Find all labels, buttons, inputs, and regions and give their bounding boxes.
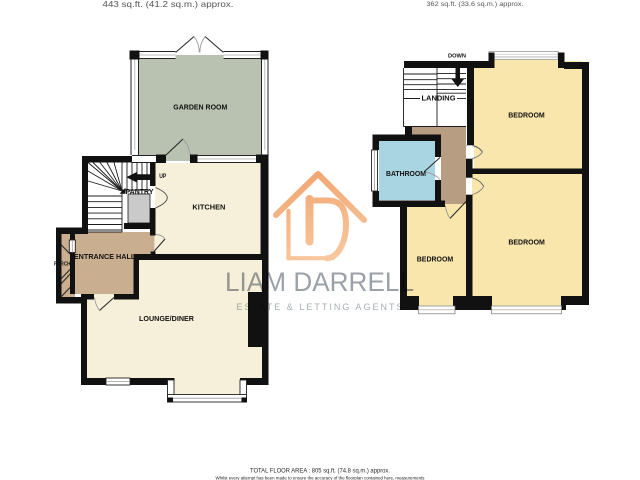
svg-text:362 sq.ft. (33.6 sq.m.) approx: 362 sq.ft. (33.6 sq.m.) approx. [427,1,524,8]
svg-text:KITCHEN: KITCHEN [192,202,225,211]
svg-text:443 sq.ft. (41.2 sq.m.) approx: 443 sq.ft. (41.2 sq.m.) approx. [103,0,234,9]
svg-text:BATHROOM: BATHROOM [386,169,426,178]
svg-text:LOUNGE/DINER: LOUNGE/DINER [139,314,194,323]
svg-text:BEDROOM: BEDROOM [417,255,454,264]
svg-text:Whilst every attempt has been: Whilst every attempt has been made to en… [216,476,426,480]
svg-text:BEDROOM: BEDROOM [508,238,545,247]
svg-text:GARDEN ROOM: GARDEN ROOM [173,103,227,112]
svg-text:PANTRY: PANTRY [126,187,154,196]
svg-text:PORCH: PORCH [54,261,71,267]
svg-text:LANDING: LANDING [422,94,456,103]
svg-text:ENTRANCE HALL: ENTRANCE HALL [74,252,136,261]
svg-text:UP: UP [159,173,166,180]
svg-text:LIAM DARRELL: LIAM DARRELL [225,267,414,297]
svg-text:DOWN: DOWN [448,54,466,60]
svg-text:TOTAL FLOOR AREA : 805 sq.ft.: TOTAL FLOOR AREA : 805 sq.ft. (74.8 sq.m… [250,468,390,475]
svg-text:BEDROOM: BEDROOM [508,110,545,119]
svg-text:ESTATE & LETTING AGENTS: ESTATE & LETTING AGENTS [237,302,403,312]
